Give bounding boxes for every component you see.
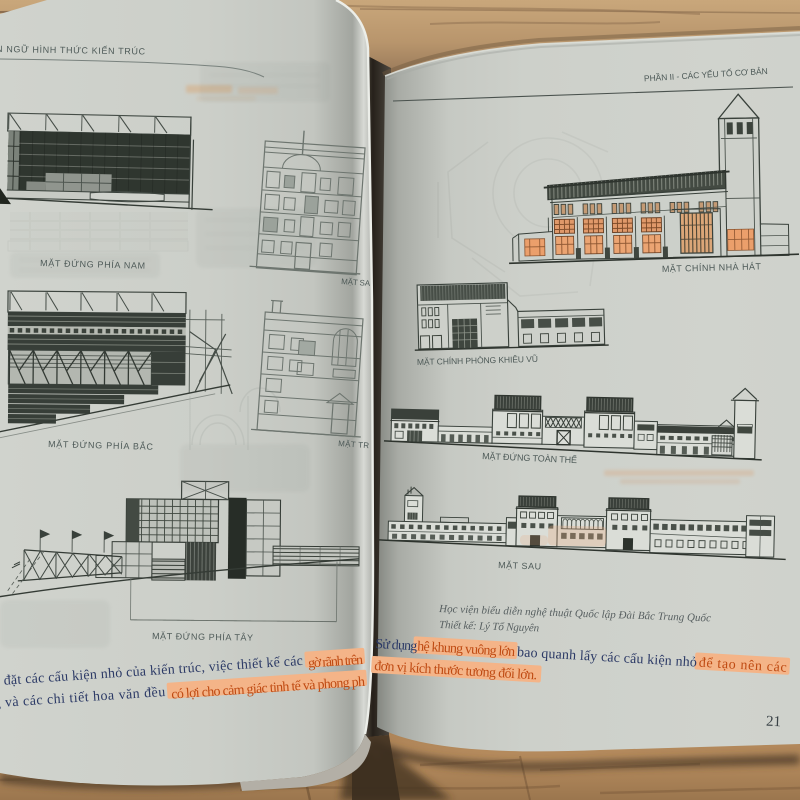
svg-text:MẶT SAU: MẶT SAU — [498, 560, 542, 572]
svg-text:21: 21 — [766, 714, 782, 731]
svg-text:Sử dụng: Sử dụng — [375, 637, 418, 654]
svg-text:MẶT ĐỨNG PHÍA TÂY: MẶT ĐỨNG PHÍA TÂY — [152, 631, 254, 643]
